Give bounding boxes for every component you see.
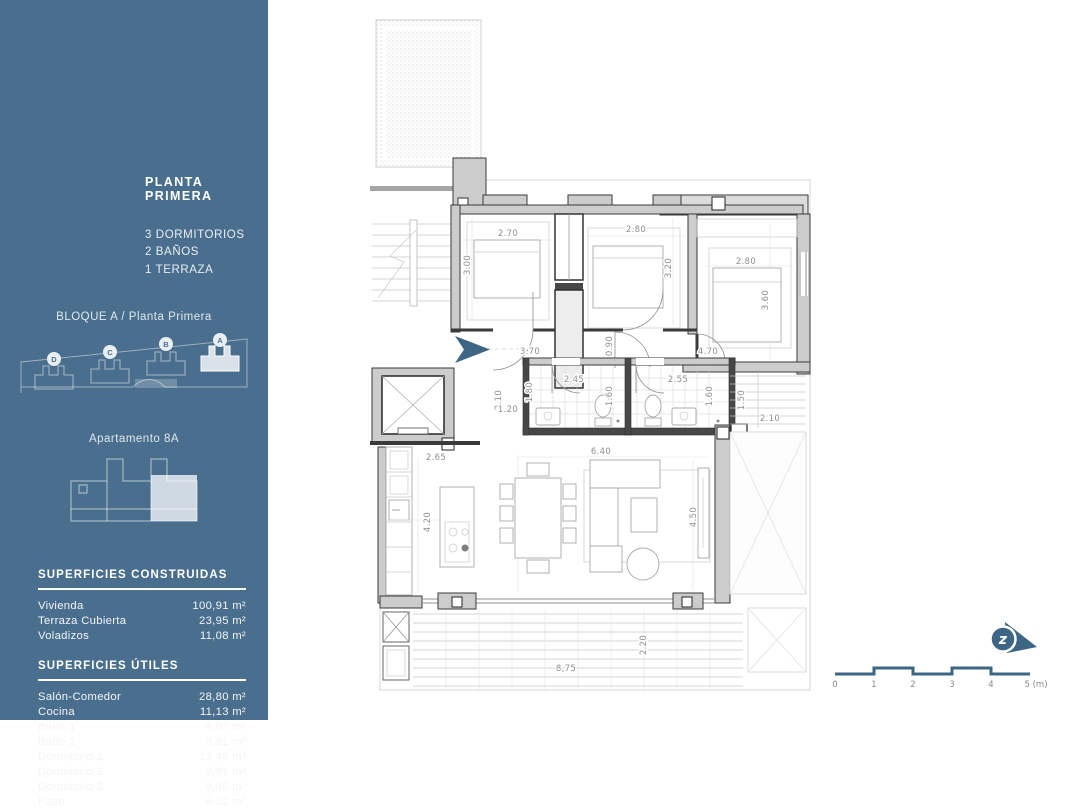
elevator	[372, 368, 454, 450]
dimension-label: 2.20	[639, 635, 649, 655]
area-value: 13,45 m²	[199, 750, 246, 765]
floor-plan: 2.70 3.00 2.80 3.20 2.80 3.60 3.70 0.90 …	[268, 0, 1080, 720]
feature-item-bedrooms: 3 DORMITORIOS	[145, 227, 268, 244]
dimension-label: 2.10	[760, 414, 780, 424]
chair	[563, 484, 576, 499]
block-marker-letter: A	[217, 336, 223, 345]
scale-label: 4	[988, 680, 993, 690]
dimension-label: 2.80	[626, 225, 646, 235]
area-row: Dormitorio 3 8,96 m²	[38, 780, 246, 795]
dimension-label: 4.50	[689, 507, 699, 527]
area-label: Baño 2	[38, 735, 76, 750]
dimension-label: 1.20	[498, 405, 518, 415]
east-wall	[715, 425, 730, 603]
dimension-label: 0.90	[605, 336, 615, 356]
area-label: Paso	[38, 795, 65, 810]
chair	[563, 506, 576, 521]
area-value: 3,91 m²	[206, 735, 246, 750]
chair	[500, 528, 513, 543]
dimension-label: 1.50	[737, 390, 747, 410]
area-value: 4,07 m²	[206, 720, 246, 735]
area-label: Dormitorio 1	[38, 750, 103, 765]
site-block-c	[91, 360, 129, 383]
tv-unit	[698, 468, 709, 558]
area-row: Vivienda 100,91 m²	[38, 599, 246, 614]
area-value: 11,08 m²	[200, 629, 246, 644]
area-value: 100,91 m²	[192, 599, 246, 614]
scale-label: 1	[871, 680, 876, 690]
dimension-label: 4.70	[698, 347, 718, 357]
area-value: 9,81 m²	[206, 765, 246, 780]
wardrobe	[697, 219, 797, 237]
south-glass-wall	[380, 593, 715, 609]
area-label: Baño 1	[38, 720, 76, 735]
area-label: Voladizos	[38, 629, 89, 644]
chair	[500, 506, 513, 521]
pouf	[627, 548, 659, 580]
site-plan-diagram: D C B A	[15, 329, 253, 409]
area-row: Baño 1 4,07 m²	[38, 720, 246, 735]
entry-arrow-icon	[455, 336, 490, 363]
dimension-label: 3.70	[520, 347, 540, 357]
constructed-areas-title: SUPERFICIES CONSTRUIDAS	[38, 569, 246, 590]
sofa	[590, 460, 660, 488]
dimension-label: 1.60	[705, 386, 715, 406]
area-label: Vivienda	[38, 599, 84, 614]
area-label: Cocina	[38, 705, 75, 720]
apartment-subtitle: Apartamento 8A	[0, 433, 268, 445]
dimension-label: 4.20	[423, 512, 433, 532]
scale-bar: 0 1 2 3 4 5 (m)	[832, 668, 1047, 690]
area-label: Salón-Comedor	[38, 690, 121, 705]
area-row: Dormitorio 2 9,81 m²	[38, 765, 246, 780]
useful-areas-section: SUPERFICIES ÚTILES Salón-Comedor 28,80 m…	[38, 660, 246, 810]
dimension-label: 6.40	[591, 447, 611, 457]
floor-plan-area: 2.70 3.00 2.80 3.20 2.80 3.60 3.70 0.90 …	[268, 0, 1080, 720]
coffee-table	[631, 498, 657, 532]
dimension-label: 3.60	[761, 290, 771, 310]
area-row: Salón-Comedor 28,80 m²	[38, 690, 246, 705]
area-value: 8,96 m²	[206, 780, 246, 795]
site-block-a	[201, 346, 239, 371]
feature-item-terrace: 1 TERRAZA	[145, 262, 268, 279]
scale-label: 3	[949, 680, 954, 690]
north-wall	[451, 195, 808, 215]
door-arc	[636, 365, 664, 393]
column	[712, 197, 725, 210]
area-label: Terraza Cubierta	[38, 614, 126, 629]
dimension-label: 1.80	[525, 382, 535, 402]
dimension-label: 3.00	[463, 255, 473, 275]
dimension-label: 2.65	[426, 453, 446, 463]
area-row: Dormitorio 1 13,45 m²	[38, 750, 246, 765]
cantilever-void	[730, 432, 806, 594]
dimension-label: 2.70	[498, 229, 518, 239]
bed	[474, 240, 540, 298]
terrace-edge	[370, 186, 456, 191]
area-value: 6,52 m²	[206, 795, 246, 810]
useful-areas-title: SUPERFICIES ÚTILES	[38, 660, 246, 681]
site-pool	[135, 379, 177, 388]
area-row: Baño 2 3,91 m²	[38, 735, 246, 750]
area-value: 28,80 m²	[199, 690, 246, 705]
dimension-label: 2.80	[736, 257, 756, 267]
area-value: 11,13 m²	[200, 705, 246, 720]
constructed-areas-section: SUPERFICIES CONSTRUIDAS Vivienda 100,91 …	[38, 569, 246, 644]
chaise	[590, 546, 622, 572]
feature-item-bathrooms: 2 BAÑOS	[145, 244, 268, 261]
area-row: Cocina 11,13 m²	[38, 705, 246, 720]
upper-terrace	[370, 20, 486, 208]
dimension-label: 2.45	[564, 375, 584, 385]
chair	[500, 484, 513, 499]
dimension-label: 8,75	[556, 664, 576, 674]
area-label: Dormitorio 3	[38, 780, 103, 795]
block-marker-letter: C	[107, 348, 113, 357]
dimension-label: 1.60	[605, 386, 615, 406]
site-block-d	[35, 366, 73, 389]
north-indicator-icon: z	[991, 622, 1038, 653]
sink	[536, 408, 560, 425]
area-row: Paso 6,52 m²	[38, 795, 246, 810]
block-marker-letter: B	[163, 340, 169, 349]
scale-label: 0	[832, 680, 837, 690]
page-title: PLANTA PRIMERA	[145, 175, 268, 203]
dimension-label: 2.55	[668, 375, 688, 385]
sink	[672, 408, 696, 425]
dimension-label: 3.20	[664, 258, 674, 278]
block-marker-letter: D	[51, 355, 57, 364]
chair	[527, 463, 549, 476]
north-letter: z	[998, 632, 1008, 648]
sofa	[590, 488, 618, 546]
area-value: 23,95 m²	[199, 614, 246, 629]
site-block-b	[147, 352, 185, 375]
scale-label: 2	[910, 680, 915, 690]
feature-list: 3 DORMITORIOS 2 BAÑOS 1 TERRAZA	[145, 227, 268, 279]
toilet	[645, 395, 661, 417]
bed	[593, 246, 663, 308]
chair	[527, 560, 549, 573]
area-label: Dormitorio 2	[38, 765, 103, 780]
chair	[563, 528, 576, 543]
area-row: Terraza Cubierta 23,95 m²	[38, 614, 246, 629]
info-sidebar: PLANTA PRIMERA 3 DORMITORIOS 2 BAÑOS 1 T…	[0, 0, 268, 720]
main-terrace	[383, 608, 806, 690]
kitchen-island	[440, 487, 474, 567]
kitchen-counter	[386, 447, 412, 595]
stairs	[372, 220, 454, 306]
apartment-diagram	[49, 449, 219, 531]
block-subtitle: BLOQUE A / Planta Primera	[0, 311, 268, 323]
dining-table	[500, 463, 576, 573]
area-row: Voladizos 11,08 m²	[38, 629, 246, 644]
scale-label: 5 (m)	[1024, 680, 1047, 690]
apartment-highlight	[151, 475, 197, 521]
utility-units	[383, 612, 409, 680]
